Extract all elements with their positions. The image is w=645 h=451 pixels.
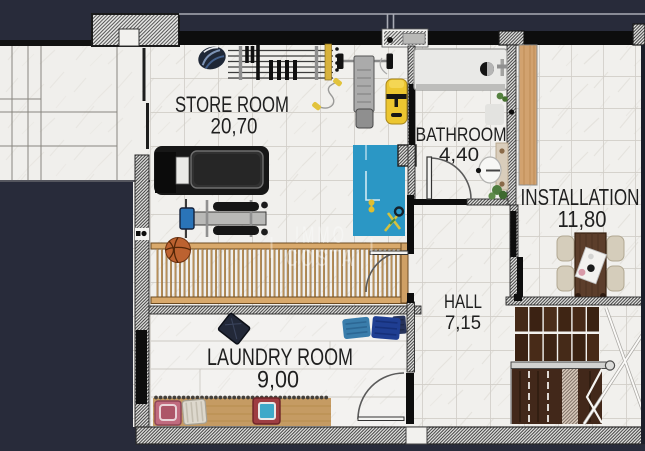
svg-text:HALL: HALL (444, 291, 482, 313)
svg-text:9,00: 9,00 (257, 367, 299, 394)
svg-text:4,40: 4,40 (439, 144, 479, 166)
svg-text:11,80: 11,80 (558, 206, 607, 232)
svg-text:COSTA: COSTA (286, 245, 356, 272)
svg-text:7,15: 7,15 (445, 312, 481, 334)
svg-text:BATHROOM: BATHROOM (416, 124, 507, 146)
svg-text:20,70: 20,70 (211, 114, 258, 139)
